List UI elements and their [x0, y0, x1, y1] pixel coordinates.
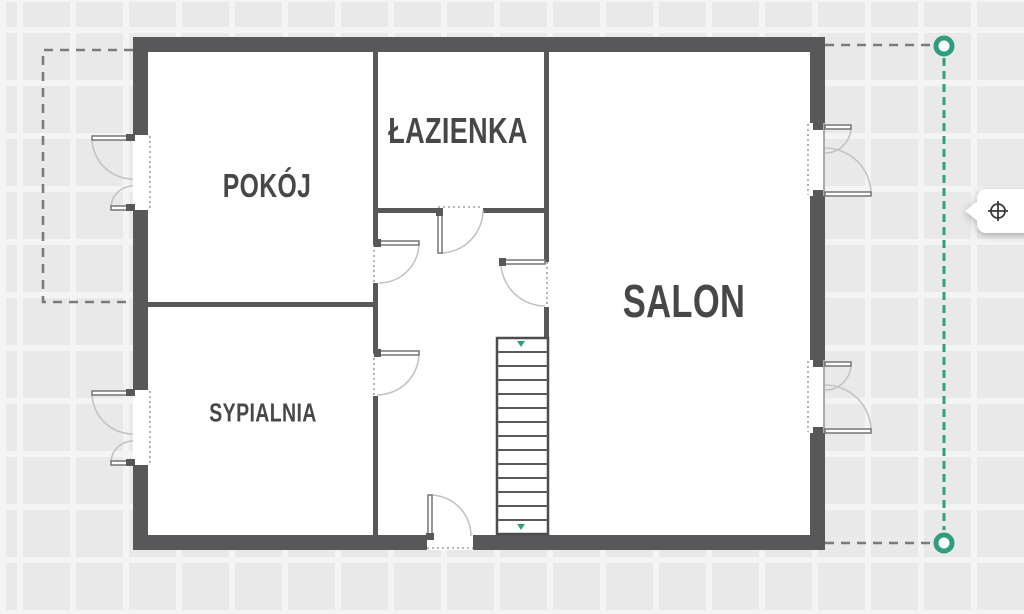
- stairs[interactable]: [497, 338, 548, 534]
- room-label-salon: SALON: [623, 274, 746, 328]
- measure-handle-bottom[interactable]: [936, 535, 952, 551]
- measure-handle-top[interactable]: [936, 38, 952, 54]
- locate-tooltip-button[interactable]: [965, 189, 1024, 233]
- measure-guide[interactable]: [936, 38, 952, 551]
- crosshair-target-icon: [986, 199, 1010, 223]
- tooltip-box: [977, 189, 1024, 233]
- room-label-pokoj: POKÓJ: [223, 167, 312, 205]
- floor-plan-canvas[interactable]: [0, 0, 1024, 614]
- room-label-sypialnia: SYPIALNIA: [209, 398, 316, 429]
- room-label-lazienka: ŁAZIENKA: [388, 110, 528, 152]
